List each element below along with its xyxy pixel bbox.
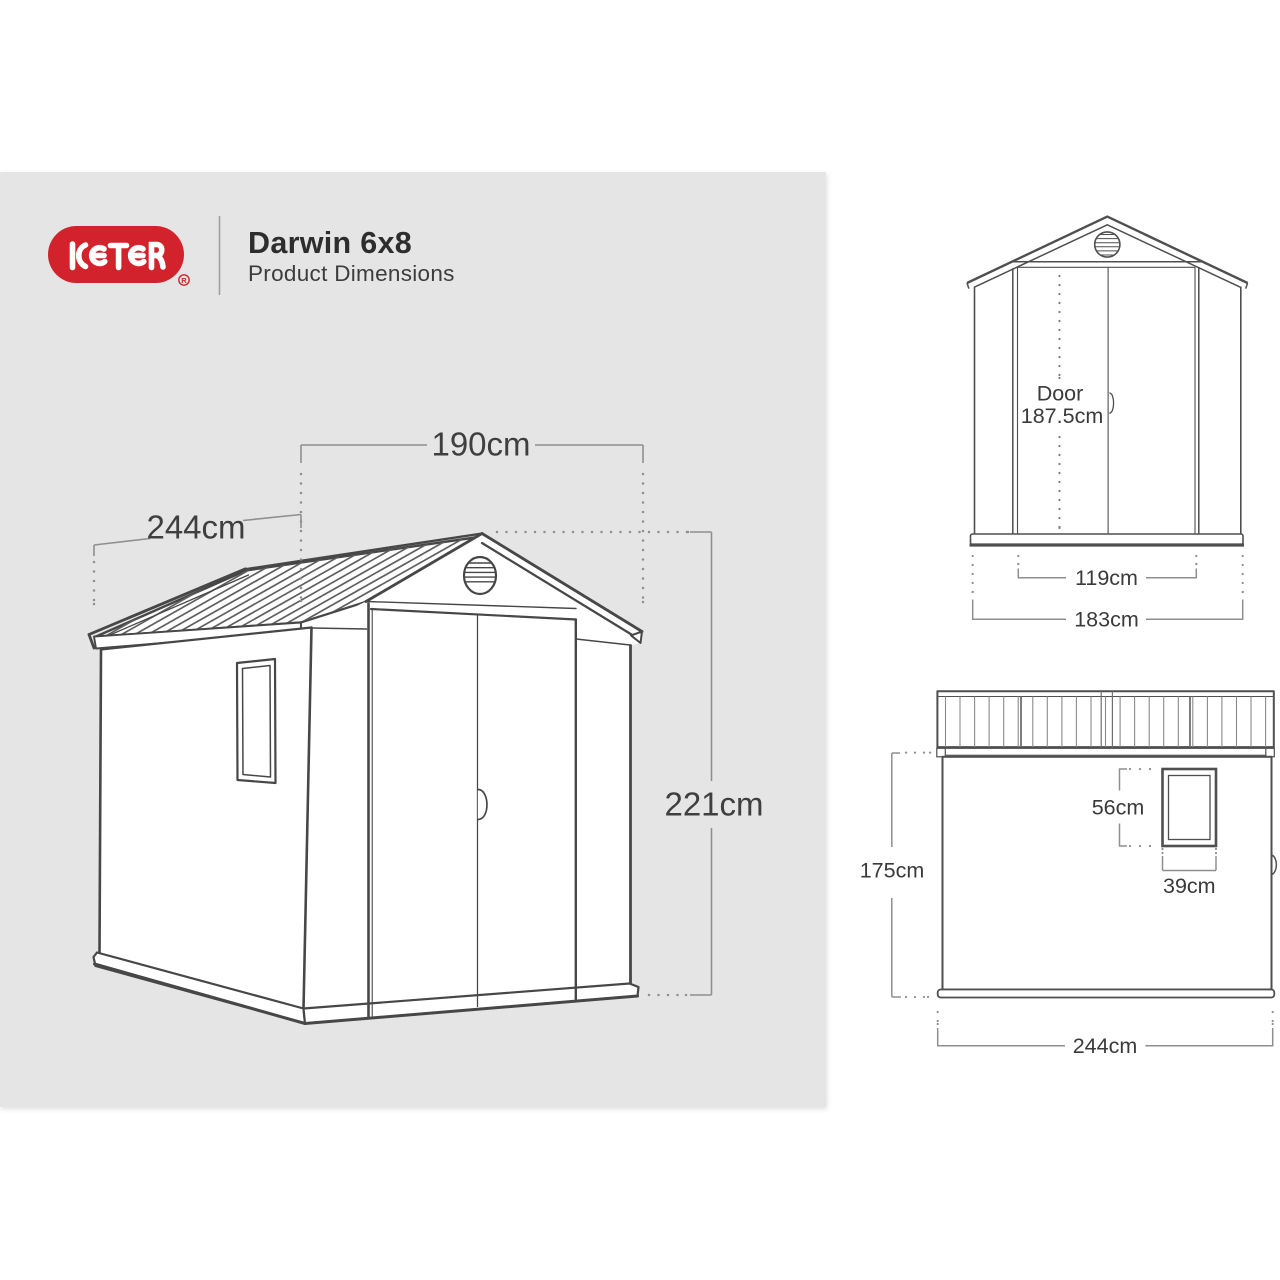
svg-text:187.5cm: 187.5cm (1021, 404, 1103, 428)
svg-text:R: R (181, 276, 187, 285)
svg-text:39cm: 39cm (1163, 874, 1216, 898)
svg-text:221cm: 221cm (664, 786, 763, 823)
svg-text:Product Dimensions: Product Dimensions (248, 261, 455, 286)
svg-text:56cm: 56cm (1092, 796, 1145, 820)
svg-text:244cm: 244cm (1073, 1034, 1138, 1058)
svg-text:175cm: 175cm (860, 859, 925, 883)
svg-text:Darwin 6x8: Darwin 6x8 (248, 226, 412, 260)
svg-text:Door: Door (1037, 382, 1084, 406)
svg-text:190cm: 190cm (431, 426, 530, 463)
svg-text:119cm: 119cm (1075, 566, 1138, 590)
svg-text:183cm: 183cm (1074, 608, 1139, 632)
svg-text:244cm: 244cm (146, 509, 245, 546)
